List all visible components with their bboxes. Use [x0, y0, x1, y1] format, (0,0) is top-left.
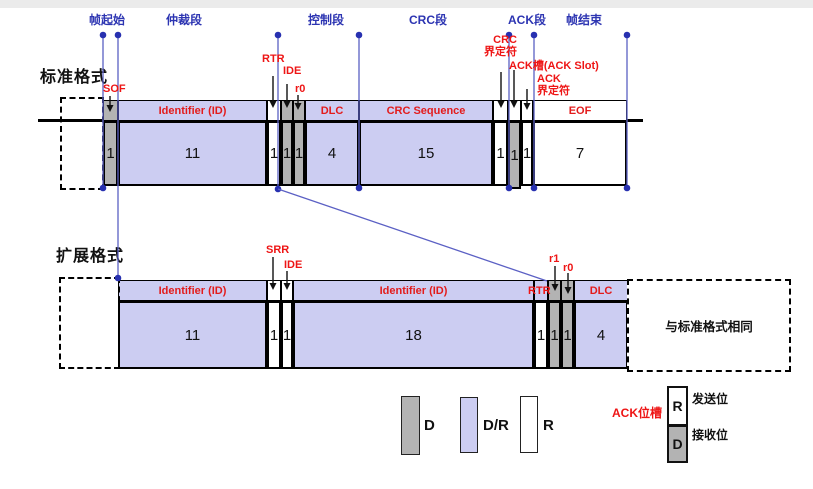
std-field-label-id: Identifier (ID)	[159, 105, 227, 117]
r1-ext-label: r1	[549, 254, 559, 266]
same-as-standard-note: 与标准格式相同	[665, 316, 753, 335]
ack-receive-bit-label: 接收位	[692, 426, 728, 443]
std-band-r0	[293, 100, 305, 121]
page-top-strip	[0, 0, 813, 8]
std-band-dlc: DLC	[305, 100, 359, 121]
ext-band-id1: Identifier (ID)	[118, 280, 267, 301]
std-bits-crcdel: 1	[493, 121, 508, 186]
ide-std-label: IDE	[283, 66, 301, 78]
ack-slot-legend-title: ACK位槽	[612, 404, 662, 421]
guide-dot-top-2	[275, 32, 282, 39]
std-bits-eof: 7	[533, 121, 627, 186]
ide-ext-label: IDE	[284, 260, 302, 272]
guide-dot-top-1	[115, 32, 122, 39]
section-label-4: ACK段	[508, 11, 546, 28]
std-band-sof	[103, 100, 118, 121]
legend-swatch-dominant-recessive	[460, 397, 478, 453]
std-bits-r0: 1	[293, 121, 305, 186]
std-band-crc: CRC Sequence	[359, 100, 493, 121]
ack-send-bit-label: 发送位	[692, 390, 728, 407]
ext-field-label-id1: Identifier (ID)	[159, 285, 227, 297]
ext-band-dlc: DLC	[574, 280, 628, 301]
std-bits-id: 11	[118, 121, 267, 186]
standard-format-title: 标准格式	[40, 63, 108, 87]
std-bits-dlc: 4	[305, 121, 359, 186]
std-band-ackslot	[508, 100, 521, 121]
ext-bits-ide: 1	[281, 301, 293, 369]
section-label-3: CRC段	[409, 11, 447, 28]
ext-band-srr	[267, 280, 281, 301]
ack-slot-send-box: R	[667, 386, 688, 426]
std-band-eof: EOF	[533, 100, 627, 121]
std-bits-ide: 1	[281, 121, 293, 186]
std-field-label-crc: CRC Sequence	[387, 105, 466, 117]
ext-bits-srr: 1	[267, 301, 281, 369]
std-band-rtr	[267, 100, 281, 121]
legend-swatch-dominant	[401, 396, 420, 455]
standard-leading-dashed-box	[60, 97, 104, 190]
ext-bits-id1: 11	[118, 301, 267, 369]
ext-field-label-dlc: DLC	[590, 285, 613, 297]
std-field-label-dlc: DLC	[321, 105, 344, 117]
section-label-0: 帧起始	[89, 11, 125, 28]
ext-bits-r1: 1	[548, 301, 561, 369]
ext-bits-r0: 1	[561, 301, 574, 369]
std-band-id: Identifier (ID)	[118, 100, 267, 121]
std-band-ackdel	[521, 100, 533, 121]
legend-label-dominant-recessive: D/R	[483, 417, 509, 434]
ext-bits-dlc: 4	[574, 301, 628, 369]
legend-swatch-recessive	[520, 396, 538, 453]
ack-slot-label: ACK槽(ACK Slot)	[509, 61, 599, 73]
r0-std-label: r0	[295, 84, 305, 96]
guide-dot-top-5	[531, 32, 538, 39]
std-bits-rtr: 1	[267, 121, 281, 186]
std-bits-ackslot: 1	[508, 121, 521, 189]
std-band-ide	[281, 100, 293, 121]
guide-dot-top-3	[356, 32, 363, 39]
ext-bits-rtr: 1	[534, 301, 548, 369]
extended-leading-dashed-box	[59, 277, 120, 369]
extended-same-as-standard-box: 与标准格式相同	[627, 279, 791, 372]
crc-delim-label: CRC界定符	[471, 35, 517, 58]
std-bits-ackdel: 1	[521, 121, 533, 186]
std-to-ext-diagonal-line	[278, 189, 547, 281]
ack-delim-label: ACK界定符	[537, 74, 570, 97]
ext-bits-id2: 18	[293, 301, 534, 369]
legend-label-dominant: D	[424, 417, 435, 434]
extended-format-title: 扩展格式	[56, 242, 124, 266]
ext-band-r0	[561, 280, 574, 301]
section-label-5: 帧结束	[566, 11, 602, 28]
rtr-std-label: RTR	[262, 54, 285, 66]
section-label-1: 仲裁段	[166, 11, 202, 28]
ext-band-ide	[281, 280, 293, 301]
guide-dot-bottom-2	[275, 186, 282, 193]
legend-label-recessive: R	[543, 417, 554, 434]
std-bits-crc: 15	[359, 121, 493, 186]
std-band-crcdel	[493, 100, 508, 121]
ext-field-label-id2: Identifier (ID)	[380, 285, 448, 297]
guide-dot-top-6	[624, 32, 631, 39]
rtr-ext-label: RTR	[528, 286, 551, 298]
diagram-canvas: 标准格式 扩展格式 帧起始仲裁段控制段CRC段ACK段帧结束 1Identifi…	[0, 0, 813, 489]
std-field-label-eof: EOF	[569, 105, 592, 117]
section-label-2: 控制段	[308, 11, 344, 28]
srr-ext-label: SRR	[266, 245, 289, 257]
guide-dot-top-0	[100, 32, 107, 39]
std-bits-sof: 1	[103, 121, 118, 186]
ack-slot-receive-box: D	[667, 425, 688, 463]
sof-label: SOF	[103, 84, 126, 96]
ext-band-id2: Identifier (ID)	[293, 280, 534, 301]
r0-ext-label: r0	[563, 263, 573, 275]
